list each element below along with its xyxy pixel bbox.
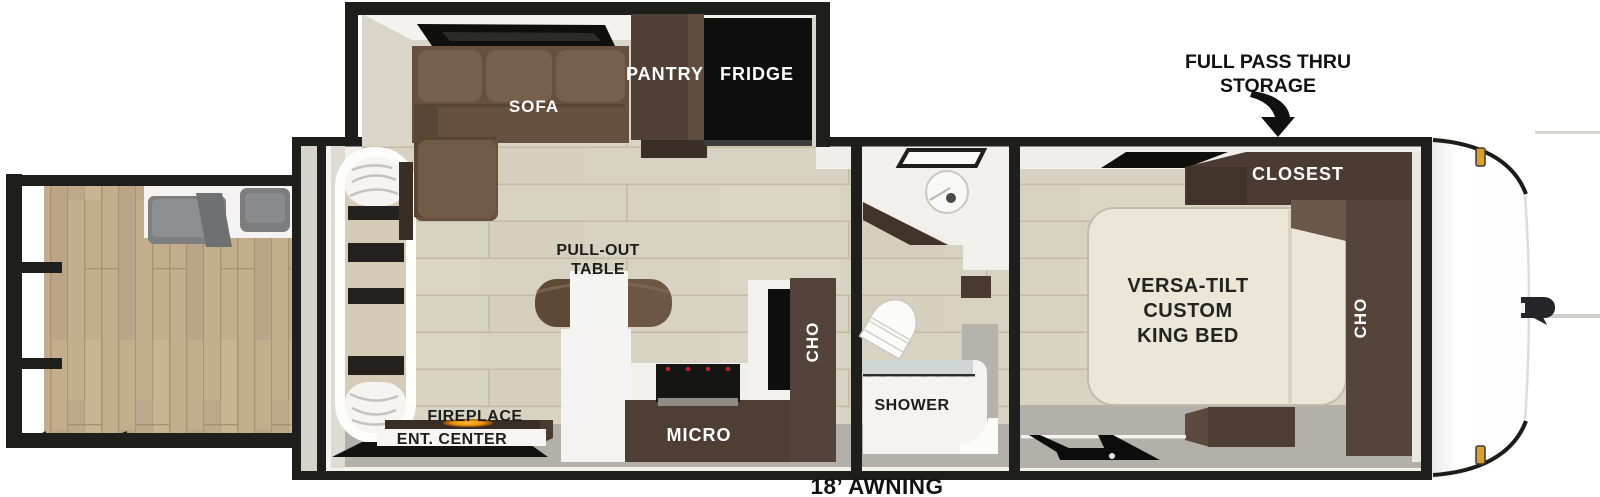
svg-text:PANTRY: PANTRY (626, 64, 704, 84)
svg-text:FIREPLACE: FIREPLACE (427, 408, 522, 425)
svg-text:FRIDGE: FRIDGE (720, 64, 794, 84)
svg-text:CHO: CHO (1351, 298, 1370, 339)
svg-text:MICRO: MICRO (667, 425, 732, 445)
svg-text:CUSTOM: CUSTOM (1143, 300, 1232, 322)
svg-text:18’ AWNING: 18’ AWNING (811, 474, 944, 497)
svg-text:SHOWER: SHOWER (875, 397, 950, 414)
svg-text:SOFA: SOFA (509, 97, 559, 116)
svg-text:KING BED: KING BED (1137, 325, 1239, 347)
svg-text:ENT. CENTER: ENT. CENTER (397, 431, 507, 448)
svg-text:CLOSEST: CLOSEST (1252, 164, 1344, 184)
svg-text:FULL PASS THRU: FULL PASS THRU (1185, 51, 1351, 73)
svg-text:TABLE: TABLE (571, 261, 625, 278)
svg-text:PULL-OUT: PULL-OUT (556, 242, 639, 259)
svg-text:STORAGE: STORAGE (1220, 75, 1316, 97)
svg-text:CHO: CHO (803, 322, 822, 363)
svg-text:VERSA-TILT: VERSA-TILT (1127, 275, 1248, 297)
